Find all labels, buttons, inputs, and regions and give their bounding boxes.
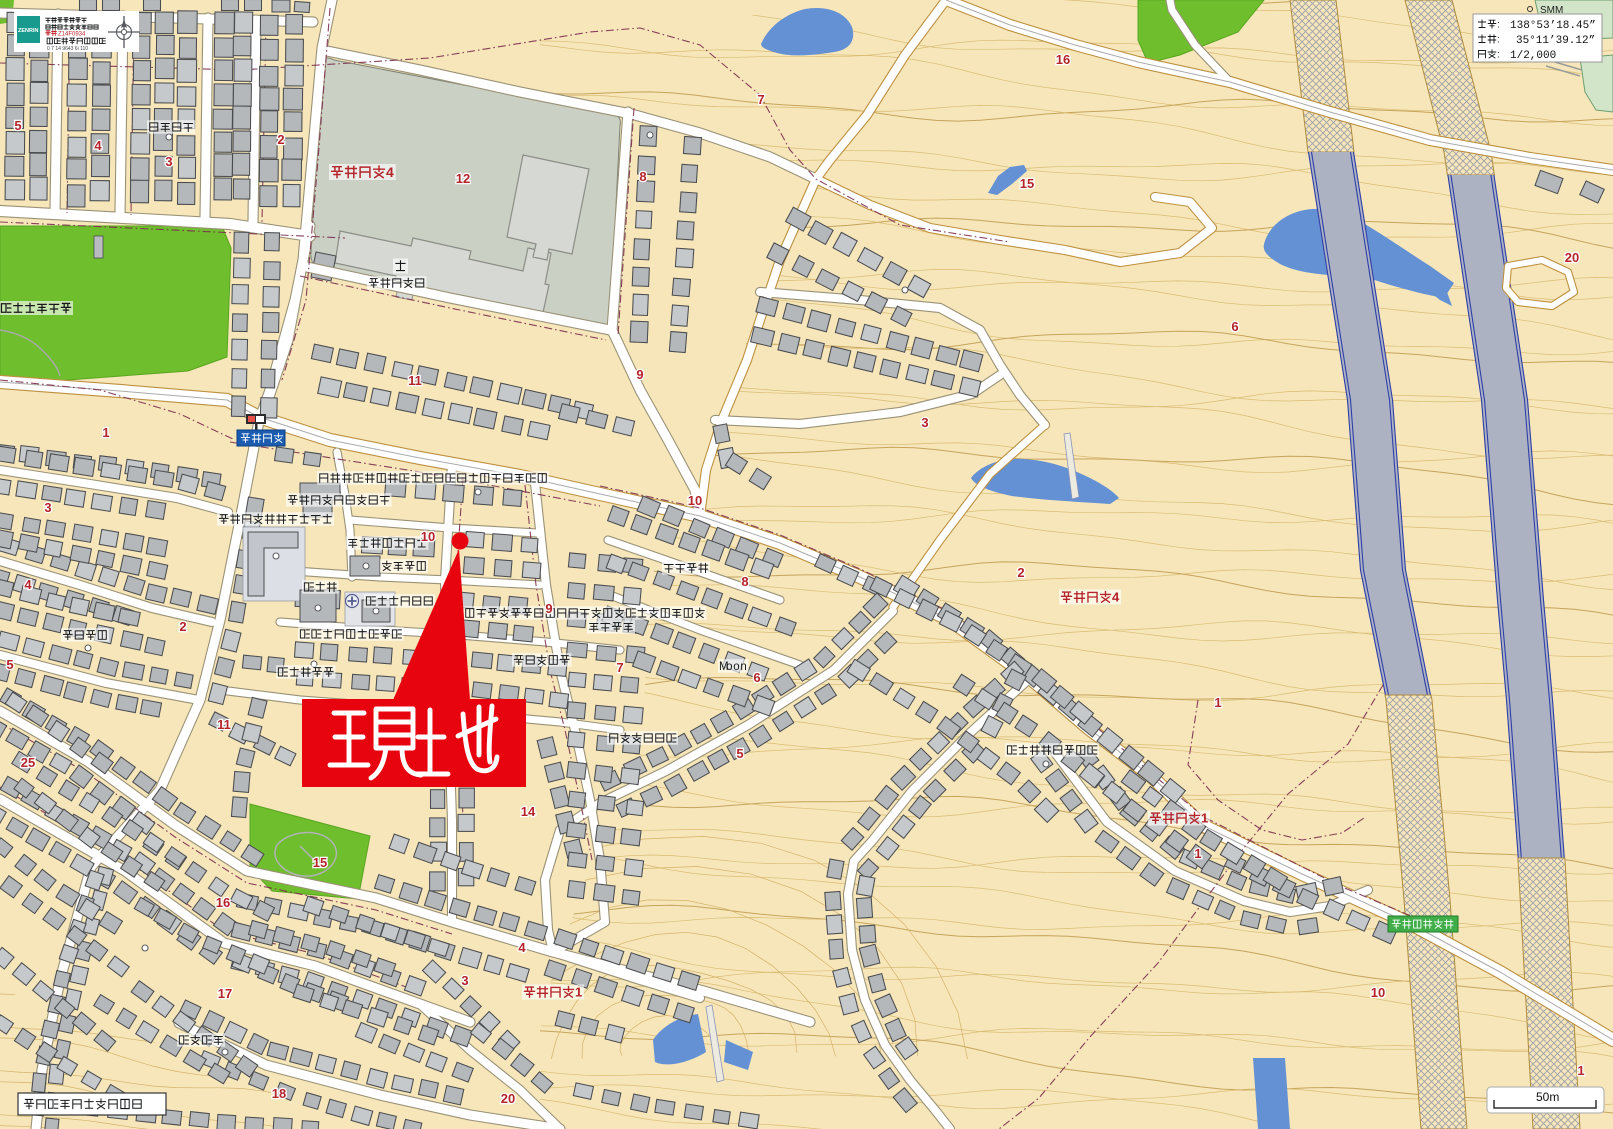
svg-text:2: 2 (1017, 565, 1024, 580)
svg-text:11: 11 (408, 373, 422, 388)
svg-text::: : (1497, 35, 1500, 46)
svg-text:n: n (740, 661, 746, 673)
svg-text:4: 4 (1112, 590, 1120, 605)
svg-text:15: 15 (313, 855, 327, 870)
svg-text:o: o (733, 661, 739, 673)
svg-text:5: 5 (6, 657, 13, 672)
svg-text:10: 10 (688, 493, 702, 508)
svg-text:1: 1 (1214, 695, 1221, 710)
svg-text:1/2,000: 1/2,000 (1510, 50, 1556, 62)
svg-text:20: 20 (501, 1091, 515, 1106)
svg-text:18: 18 (272, 1086, 286, 1101)
svg-text::: : (1497, 20, 1500, 31)
svg-text::: : (1497, 50, 1500, 61)
svg-text:o: o (726, 661, 732, 673)
svg-text:35°11’39.12”: 35°11’39.12” (1516, 35, 1595, 47)
svg-text:7: 7 (616, 660, 623, 675)
svg-text:20: 20 (1565, 250, 1579, 265)
svg-text:4: 4 (24, 577, 32, 592)
svg-text:0 7 14 9643 6i 110: 0 7 14 9643 6i 110 (47, 46, 88, 52)
svg-text:3: 3 (921, 415, 928, 430)
svg-text:12: 12 (456, 171, 470, 186)
svg-text:6: 6 (1231, 319, 1238, 334)
svg-text:4: 4 (94, 138, 102, 153)
svg-text:3: 3 (44, 500, 51, 515)
svg-text:3: 3 (461, 973, 468, 988)
svg-text:10: 10 (421, 529, 435, 544)
svg-text:138°53’18.45”: 138°53’18.45” (1510, 20, 1596, 32)
svg-text:5: 5 (736, 746, 743, 761)
svg-text:2: 2 (277, 132, 284, 147)
svg-text:9: 9 (636, 367, 643, 382)
svg-text:3: 3 (165, 154, 172, 169)
svg-text:5: 5 (14, 118, 21, 133)
svg-text:6: 6 (753, 670, 760, 685)
svg-text:17: 17 (218, 986, 232, 1001)
svg-text:14: 14 (521, 804, 536, 819)
svg-text:11: 11 (217, 717, 231, 732)
svg-text:1: 1 (1577, 1063, 1584, 1078)
svg-text:15: 15 (1020, 176, 1034, 191)
svg-text:8: 8 (741, 574, 748, 589)
svg-text:Z14F0934: Z14F0934 (58, 32, 86, 38)
svg-text:1: 1 (575, 985, 582, 1000)
svg-text:7: 7 (757, 92, 764, 107)
svg-text:10: 10 (1371, 985, 1385, 1000)
svg-text:1: 1 (102, 425, 109, 440)
svg-text:8: 8 (639, 169, 646, 184)
svg-text:50m: 50m (1536, 1090, 1559, 1104)
svg-text:25: 25 (21, 755, 35, 770)
svg-text:4: 4 (518, 940, 526, 955)
svg-text:ZENRIN: ZENRIN (18, 28, 39, 34)
svg-text:1: 1 (1194, 846, 1201, 861)
svg-text:16: 16 (216, 895, 230, 910)
svg-text:16: 16 (1056, 52, 1070, 67)
svg-text:1: 1 (1201, 811, 1208, 826)
svg-text:9: 9 (545, 601, 552, 616)
svg-text:4: 4 (386, 164, 394, 180)
svg-text:2: 2 (179, 619, 186, 634)
